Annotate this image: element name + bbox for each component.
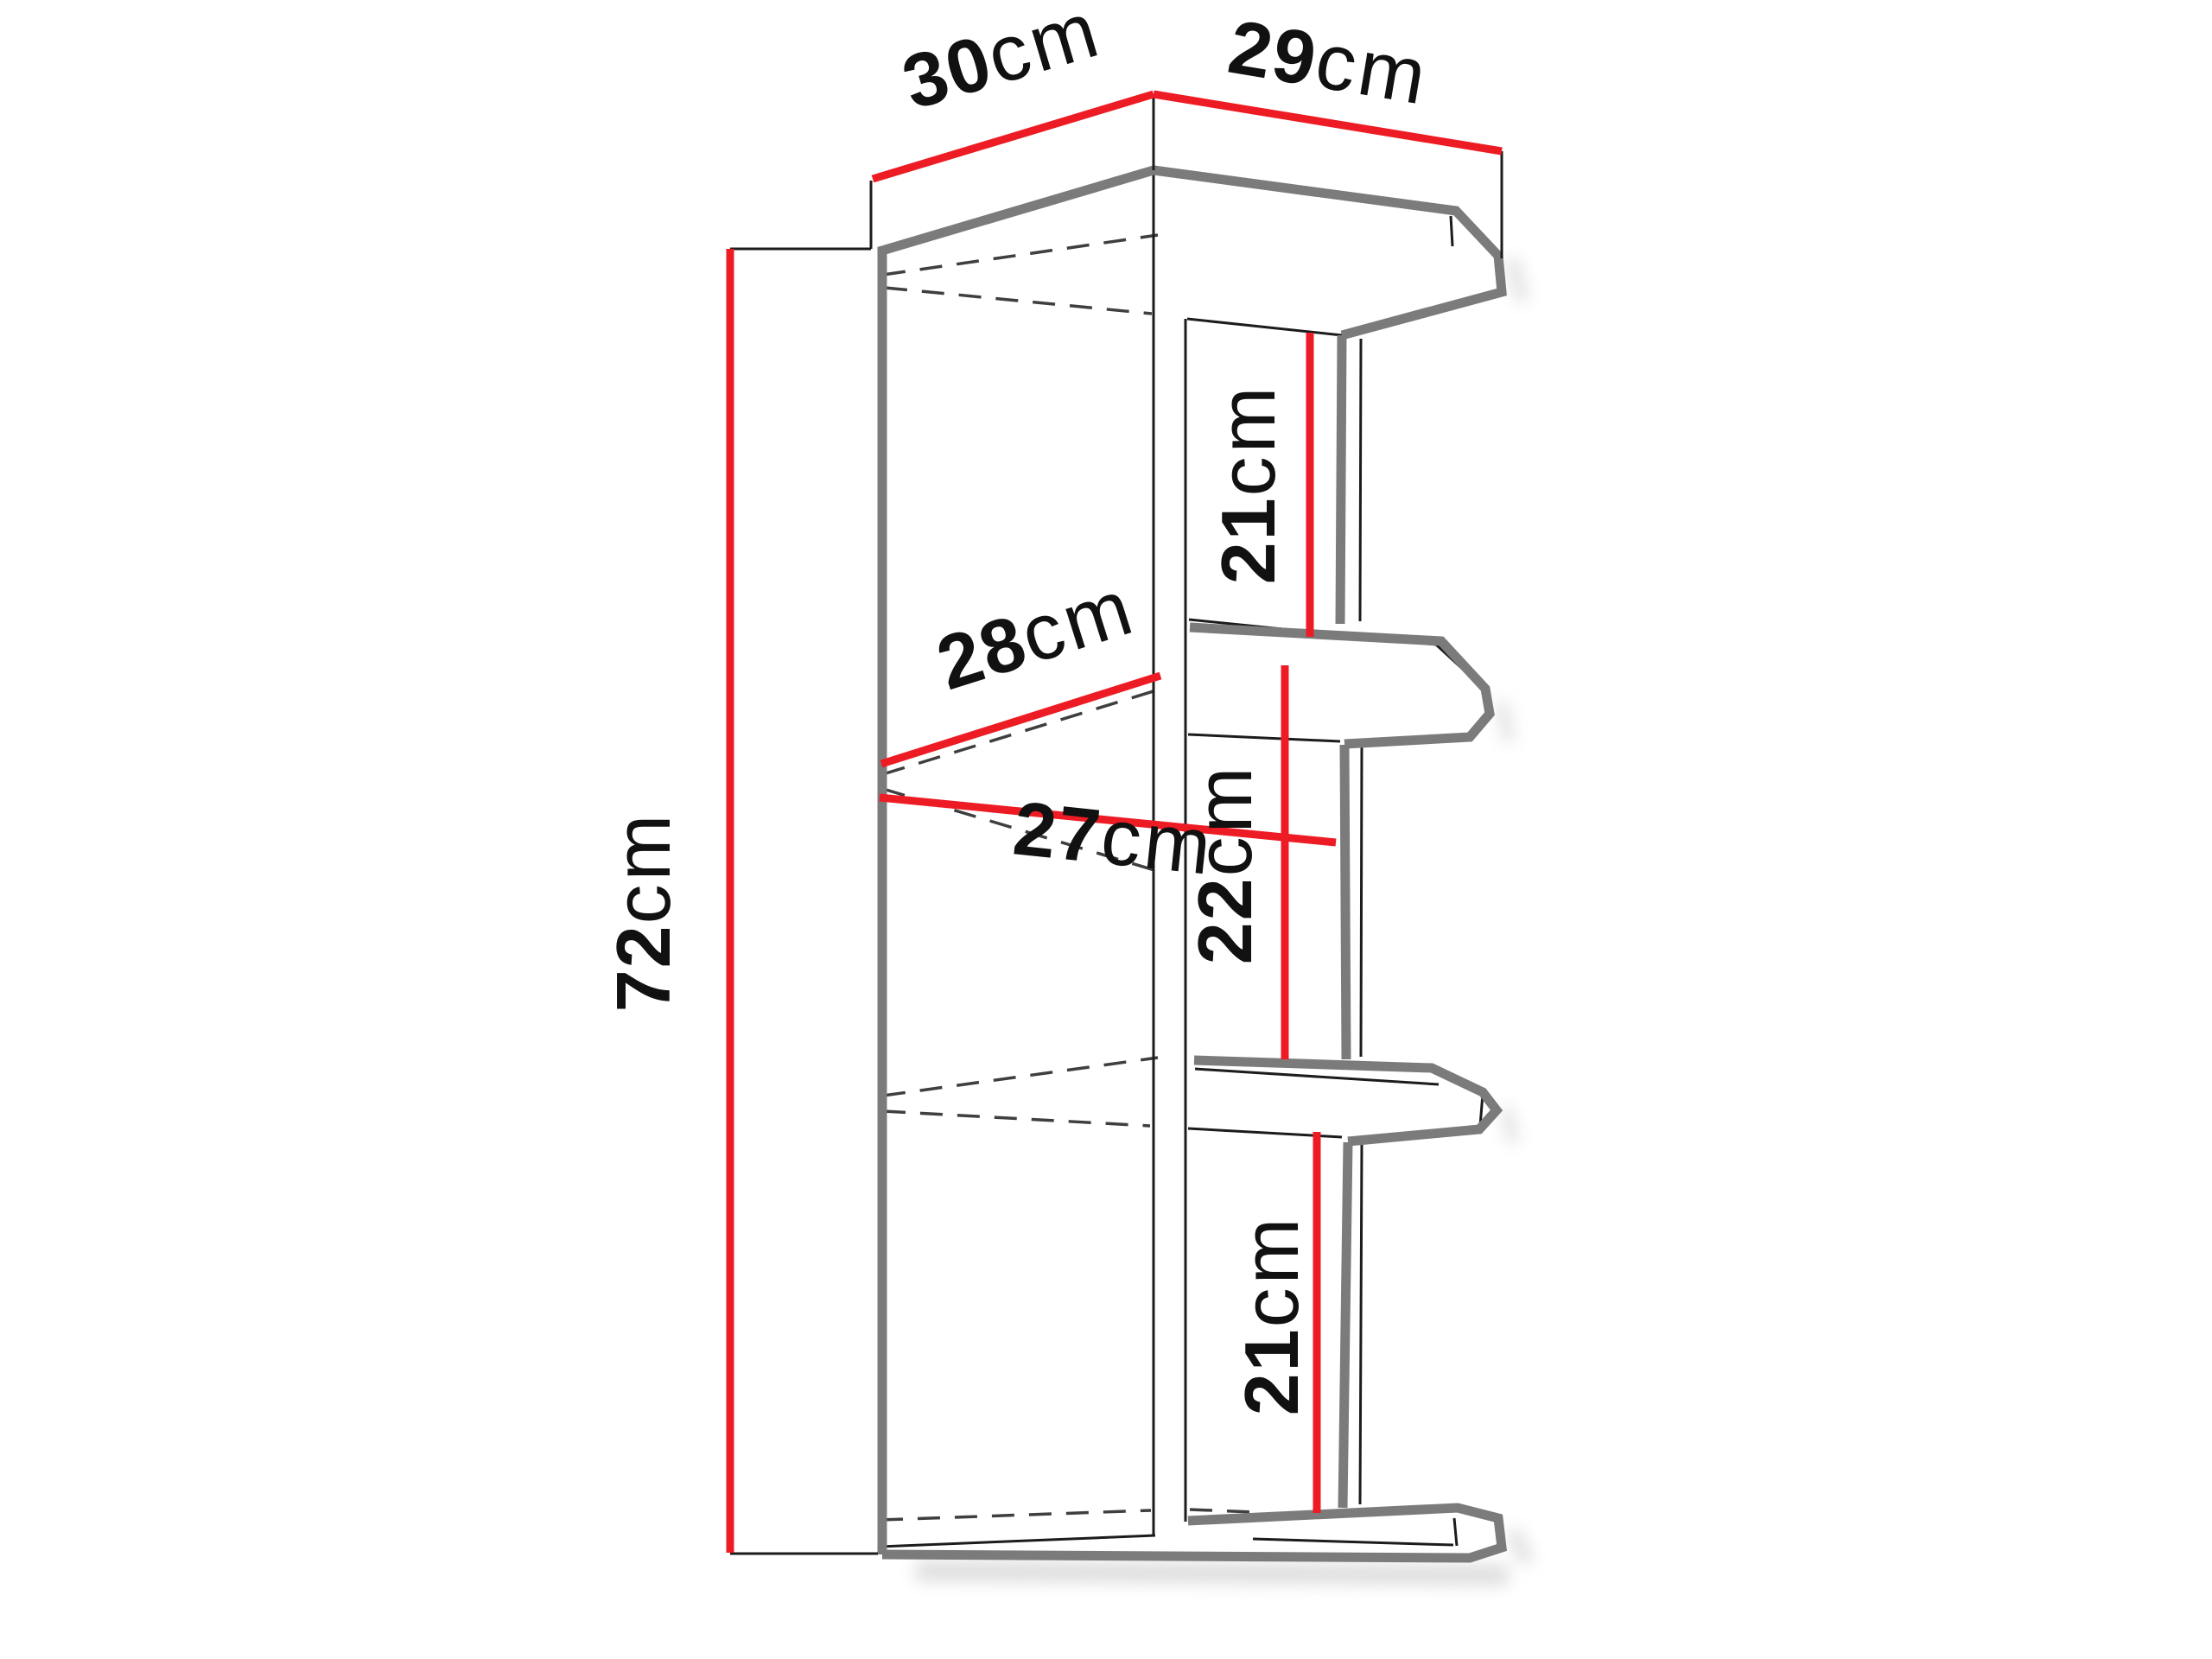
right-panel-lower [1343, 1142, 1348, 1508]
label-28cm: 28cm [926, 563, 1144, 707]
hidden-edge-bottom-right [1190, 1510, 1255, 1512]
label-21cm-bottom: 21cm [1227, 1215, 1315, 1416]
hidden-edge-shelf3-lower [883, 1111, 1150, 1126]
bottomboard-chamfer-tick [1454, 1518, 1457, 1546]
right-panel-middle [1344, 745, 1346, 1059]
bottomboard-face-bottom-edge [1253, 1539, 1453, 1545]
label-72cm: 72cm [599, 811, 687, 1013]
right-panel-edge-gap3 [1360, 1145, 1362, 1504]
hidden-edge-shelf3-upper [883, 1058, 1158, 1096]
middle-shelf [1190, 627, 1490, 744]
bottomboard-top-edge-left [880, 1535, 1155, 1547]
shadow-middle-chamfer [1501, 702, 1510, 741]
dimension-diagram-page: 30cm 29cm 72cm 28cm 27cm 21cm 22cm 21cm [0, 0, 2212, 1659]
hidden-edge-bottom-left [880, 1510, 1151, 1520]
label-22cm: 22cm [1180, 764, 1268, 965]
topboard-underside-edge [1187, 319, 1342, 335]
right-panel-upper [1340, 335, 1342, 624]
right-panel-edge-gap1 [1360, 339, 1361, 621]
corner-shelf-diagram: 30cm 29cm 72cm 28cm 27cm 21cm 22cm 21cm [0, 0, 2212, 1659]
shadow-under-cabinet [916, 1571, 1508, 1575]
topboard-chamfer-tick [1451, 216, 1452, 246]
label-21cm-top: 21cm [1204, 384, 1292, 585]
hidden-edge-mid-upper [883, 690, 1156, 774]
hidden-edge-top-lower [885, 288, 1152, 314]
label-30cm: 30cm [893, 0, 1110, 126]
dim-line-28cm [881, 676, 1160, 764]
shadow-top-chamfer [1512, 259, 1522, 301]
right-panel-edge-gap2 [1361, 747, 1362, 1057]
shadow-bottom-chamfer [1512, 1531, 1528, 1562]
shadow-third-chamfer [1505, 1108, 1514, 1142]
top-board [1154, 170, 1502, 335]
label-29cm: 29cm [1223, 2, 1435, 122]
midshelf-underside-edge [1188, 734, 1340, 741]
